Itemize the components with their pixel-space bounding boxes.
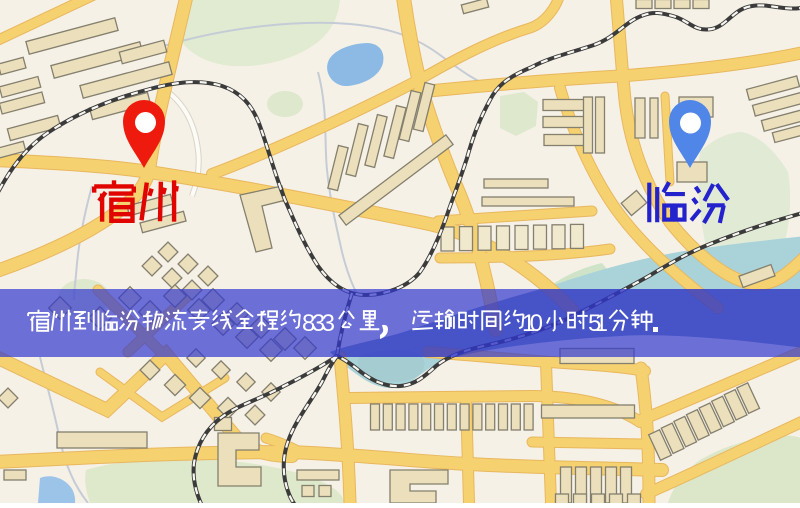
svg-text:51: 51 [588,310,608,337]
svg-text:833: 833 [302,310,335,337]
svg-text:10: 10 [522,310,543,337]
